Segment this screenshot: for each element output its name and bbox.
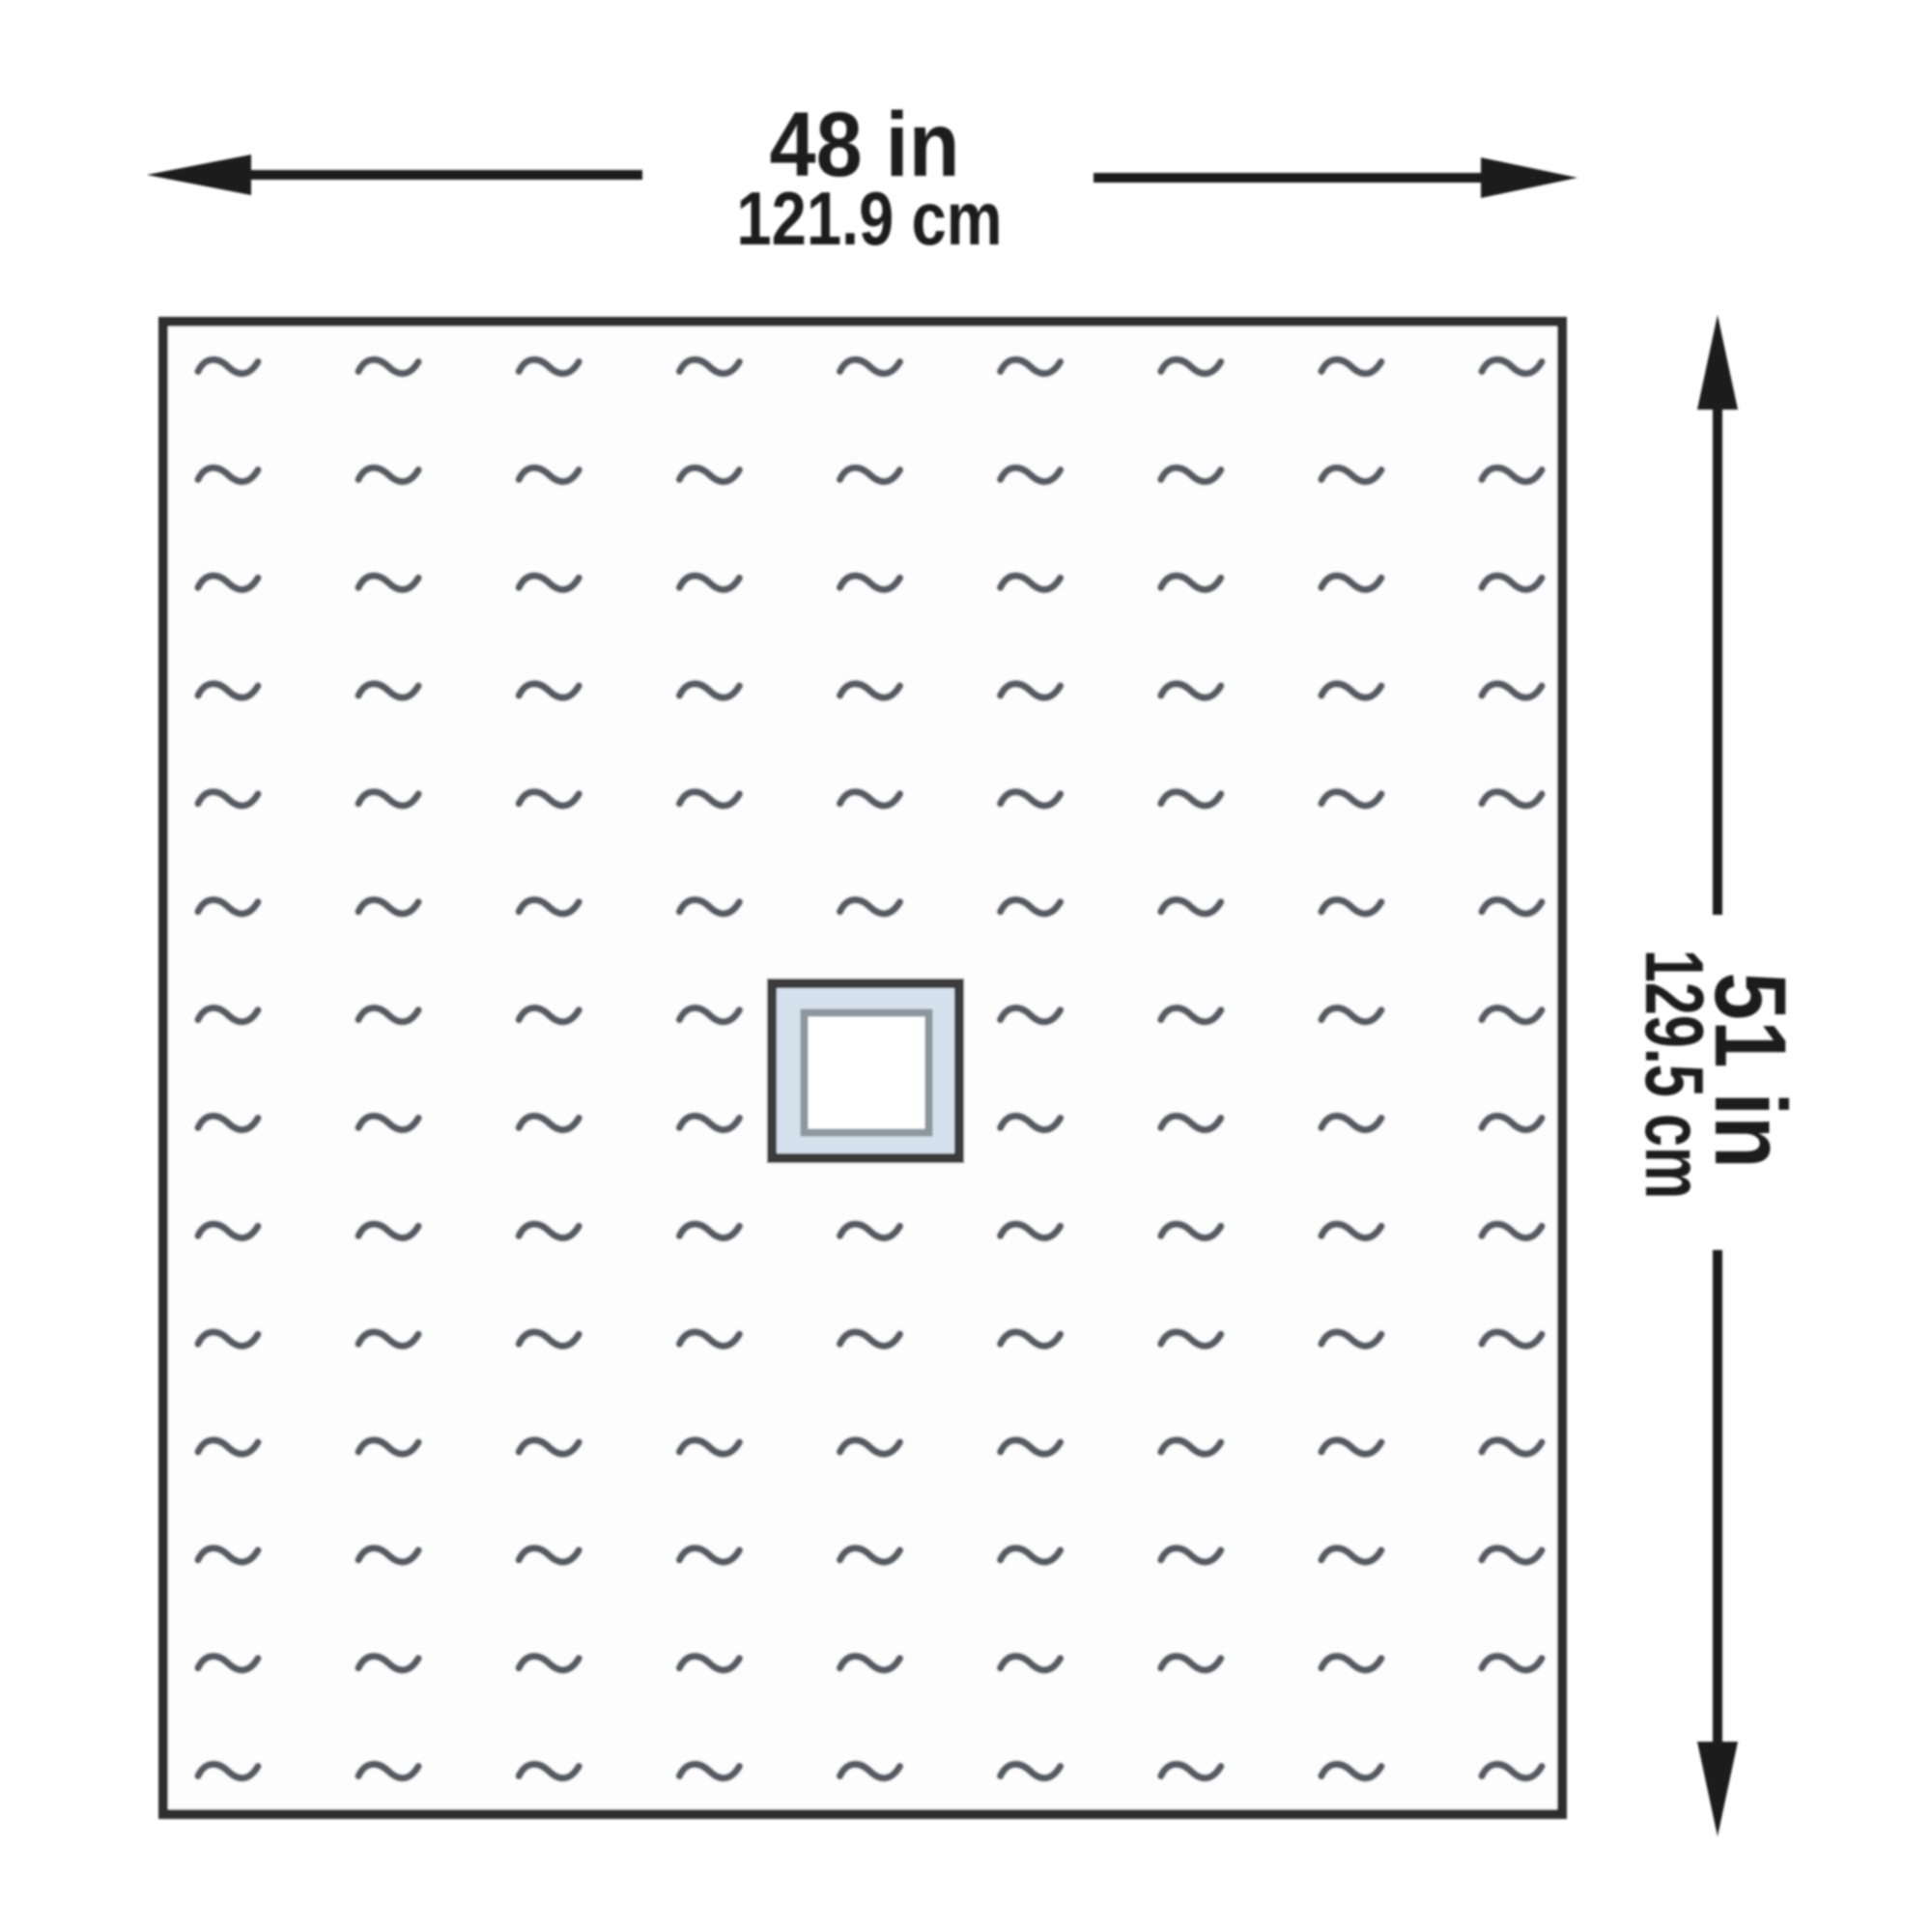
svg-text:121.9 cm: 121.9 cm [736,178,1002,262]
svg-text:129.5 cm: 129.5 cm [1629,950,1720,1200]
